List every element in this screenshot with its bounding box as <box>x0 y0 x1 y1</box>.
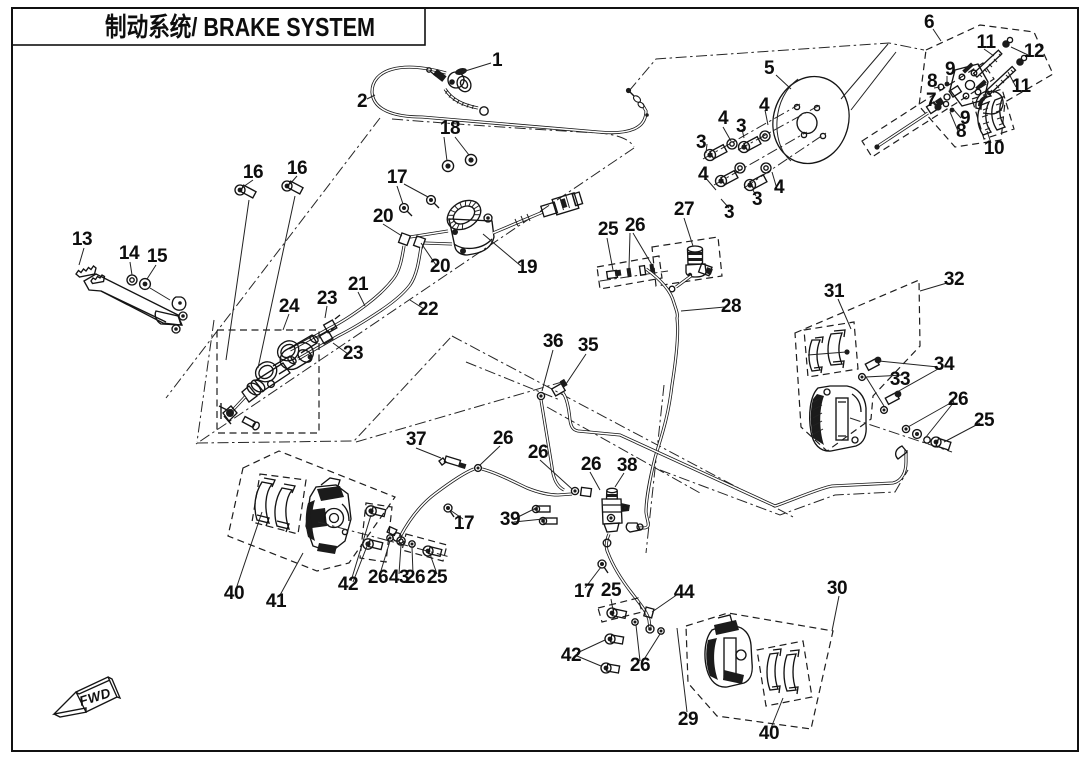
svg-text:38: 38 <box>617 455 637 476</box>
svg-text:42: 42 <box>338 574 358 595</box>
svg-text:26: 26 <box>405 567 425 588</box>
svg-text:25: 25 <box>601 580 622 601</box>
svg-text:12: 12 <box>1024 41 1044 62</box>
svg-text:17: 17 <box>574 581 594 602</box>
svg-text:30: 30 <box>827 578 847 599</box>
svg-text:8: 8 <box>927 71 937 92</box>
svg-text:16: 16 <box>243 162 263 183</box>
svg-text:37: 37 <box>406 429 426 450</box>
svg-text:20: 20 <box>373 206 393 227</box>
svg-text:26: 26 <box>948 389 968 410</box>
svg-text:6: 6 <box>924 12 934 33</box>
svg-text:23: 23 <box>343 343 363 364</box>
svg-text:40: 40 <box>224 583 244 604</box>
svg-text:3: 3 <box>752 189 762 210</box>
svg-text:21: 21 <box>348 274 369 295</box>
svg-text:34: 34 <box>934 354 955 375</box>
svg-text:44: 44 <box>674 582 695 603</box>
svg-text:13: 13 <box>72 229 92 250</box>
svg-text:3: 3 <box>724 202 734 223</box>
svg-text:31: 31 <box>824 281 845 302</box>
svg-text:制动系统/ BRAKE SYSTEM: 制动系统/ BRAKE SYSTEM <box>105 12 375 42</box>
svg-text:26: 26 <box>493 428 513 449</box>
svg-text:2: 2 <box>357 91 367 112</box>
svg-text:17: 17 <box>454 513 474 534</box>
svg-text:22: 22 <box>418 299 438 320</box>
svg-text:20: 20 <box>430 256 450 277</box>
svg-text:28: 28 <box>721 296 741 317</box>
svg-text:25: 25 <box>598 219 619 240</box>
svg-text:26: 26 <box>528 442 548 463</box>
svg-text:26: 26 <box>630 655 650 676</box>
svg-text:35: 35 <box>578 335 599 356</box>
svg-text:7: 7 <box>926 90 936 111</box>
svg-text:3: 3 <box>696 132 706 153</box>
svg-text:39: 39 <box>500 509 520 530</box>
svg-text:4: 4 <box>718 108 729 129</box>
svg-text:17: 17 <box>387 167 407 188</box>
svg-text:1: 1 <box>492 50 503 71</box>
svg-text:24: 24 <box>279 296 300 317</box>
svg-text:4: 4 <box>774 177 785 198</box>
svg-text:33: 33 <box>890 369 910 390</box>
svg-text:4: 4 <box>698 164 709 185</box>
svg-text:29: 29 <box>678 709 698 730</box>
svg-text:25: 25 <box>974 410 995 431</box>
svg-text:9: 9 <box>945 59 955 80</box>
svg-text:26: 26 <box>581 454 601 475</box>
svg-text:23: 23 <box>317 288 337 309</box>
svg-text:27: 27 <box>674 199 694 220</box>
svg-text:11: 11 <box>976 32 996 53</box>
svg-text:40: 40 <box>759 723 779 744</box>
svg-text:10: 10 <box>984 138 1004 159</box>
svg-text:36: 36 <box>543 331 563 352</box>
svg-text:25: 25 <box>427 567 448 588</box>
svg-text:8: 8 <box>956 121 966 142</box>
svg-text:42: 42 <box>561 645 581 666</box>
svg-text:14: 14 <box>119 243 140 264</box>
svg-text:19: 19 <box>517 257 537 278</box>
svg-text:26: 26 <box>368 567 388 588</box>
svg-text:3: 3 <box>736 116 746 137</box>
svg-text:11: 11 <box>1011 76 1031 97</box>
svg-text:16: 16 <box>287 158 307 179</box>
svg-text:41: 41 <box>266 591 287 612</box>
svg-text:4: 4 <box>759 95 770 116</box>
svg-text:5: 5 <box>764 58 775 79</box>
svg-text:15: 15 <box>147 246 168 267</box>
svg-text:32: 32 <box>944 269 964 290</box>
svg-text:26: 26 <box>625 215 645 236</box>
svg-text:18: 18 <box>440 118 460 139</box>
